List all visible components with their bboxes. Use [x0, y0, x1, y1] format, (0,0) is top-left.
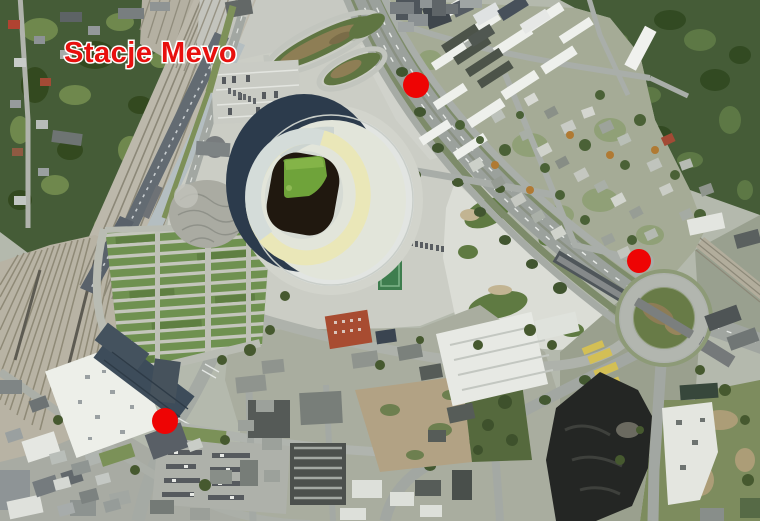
svg-text:Stacje Mevo: Stacje Mevo	[64, 37, 237, 69]
